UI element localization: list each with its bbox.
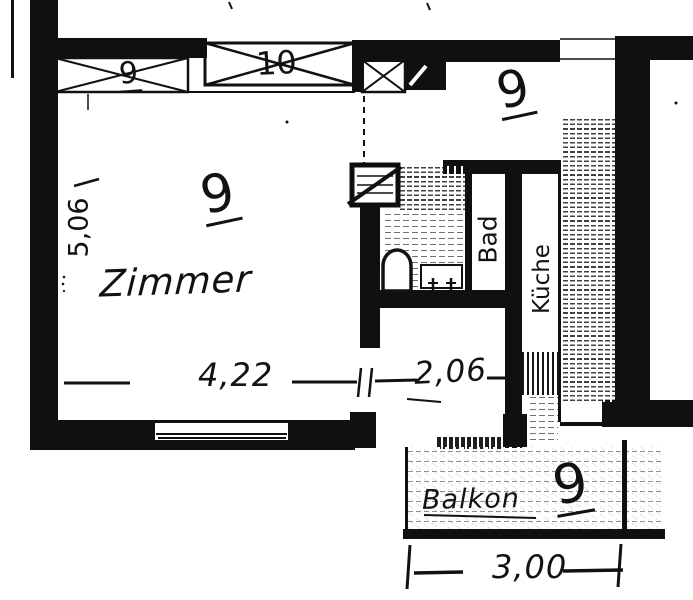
- window-10-text: 10: [255, 43, 298, 83]
- bottom-window-glazing-line-2: [158, 437, 286, 439]
- dim-tick-double-1: [358, 368, 361, 397]
- wall-filler-left-of-small-window: [352, 40, 364, 92]
- wall-top-mid: [352, 40, 560, 62]
- wall-kitchen-foot: [503, 414, 527, 447]
- wall-filler-right-of-small-window: [430, 43, 446, 90]
- bathroom-hatch-lower: [382, 212, 465, 290]
- dimension-zimmer-width: 4,22: [198, 356, 273, 394]
- wall-thin-connector: [560, 422, 604, 426]
- dim-300-tick-right: [618, 544, 621, 587]
- wall-bath-bottom: [362, 290, 509, 308]
- dim-300-text: 3,00: [492, 548, 567, 586]
- zimmer-number-text: 9: [195, 165, 243, 227]
- dimension-balcony-width: 3,00: [492, 548, 567, 586]
- scan-mark-4: [675, 102, 678, 105]
- dim-506-dot-1: [63, 276, 66, 279]
- small-window-frame: [362, 60, 405, 92]
- dim-300-line-right: [563, 570, 623, 571]
- kitchen-grille: [522, 352, 559, 395]
- wall-bath-partition: [465, 170, 472, 292]
- scan-mark-1: [229, 2, 232, 9]
- room-number-hall: 9: [490, 57, 537, 121]
- bad-text: Bad: [474, 215, 503, 263]
- wall-bottom-stub: [350, 412, 376, 448]
- kueche-text: Küche: [529, 244, 555, 314]
- scan-mark-2: [427, 3, 430, 10]
- wall-interior: [360, 202, 380, 348]
- bottom-window-glazing-line-1: [156, 433, 287, 435]
- vent-box-diagonal: [348, 167, 401, 204]
- wall-left: [30, 0, 58, 450]
- right-strip-hatch: [561, 118, 615, 402]
- balkon-text: Balkon: [422, 483, 520, 516]
- dim-300-tick-left: [407, 545, 410, 589]
- dim-506-text: 5,06: [64, 197, 95, 257]
- dim-tick-double-2: [369, 368, 372, 397]
- hall-number-text: 9: [491, 61, 537, 121]
- zimmer-text: Zimmer: [99, 257, 253, 305]
- floor-plan-canvas: Zimmer 9 9 9 9 10 Bad Küche Balkon 5,06 …: [0, 0, 693, 600]
- small-window-cross-1: [362, 60, 405, 92]
- room-label-zimmer: Zimmer: [99, 257, 253, 305]
- dim-506-dot-3: [63, 290, 65, 292]
- window-label-9: 9: [117, 55, 143, 93]
- dimension-hall-width: 2,06: [413, 352, 488, 392]
- dim-line-206-left: [375, 380, 417, 381]
- dim-506-tick: [74, 179, 99, 186]
- window-label-10: 10: [255, 43, 298, 83]
- dim-206-underline: [407, 399, 441, 402]
- kitchen-strip-lower-hatch: [527, 395, 558, 445]
- dimension-height-left: 5,06: [64, 197, 95, 257]
- dim-422-text: 4,22: [198, 356, 273, 394]
- dim-300-line-left: [414, 572, 463, 573]
- room-label-balkon: Balkon: [422, 483, 520, 516]
- dim-206-text: 2,06: [413, 352, 488, 392]
- balcony-right-edge: [622, 440, 627, 533]
- bathroom-hatch-upper: [398, 166, 465, 212]
- balcony-left-edge: [405, 447, 408, 533]
- wall-right-upper: [615, 36, 650, 402]
- wall-far-left-line: [11, 0, 14, 78]
- window-9-text: 9: [117, 58, 142, 93]
- vent-box: [352, 165, 398, 205]
- wall-right-step: [602, 400, 693, 427]
- room-number-zimmer: 9: [194, 161, 243, 227]
- room-label-kueche: Küche: [529, 244, 555, 314]
- shaft-black-square: [405, 62, 432, 90]
- scan-mark-3: [286, 121, 289, 124]
- room-label-bad: Bad: [474, 215, 503, 263]
- window-sill-line: [55, 91, 355, 93]
- small-window-cross-2: [362, 60, 405, 92]
- dim-506-dot-2: [62, 283, 65, 286]
